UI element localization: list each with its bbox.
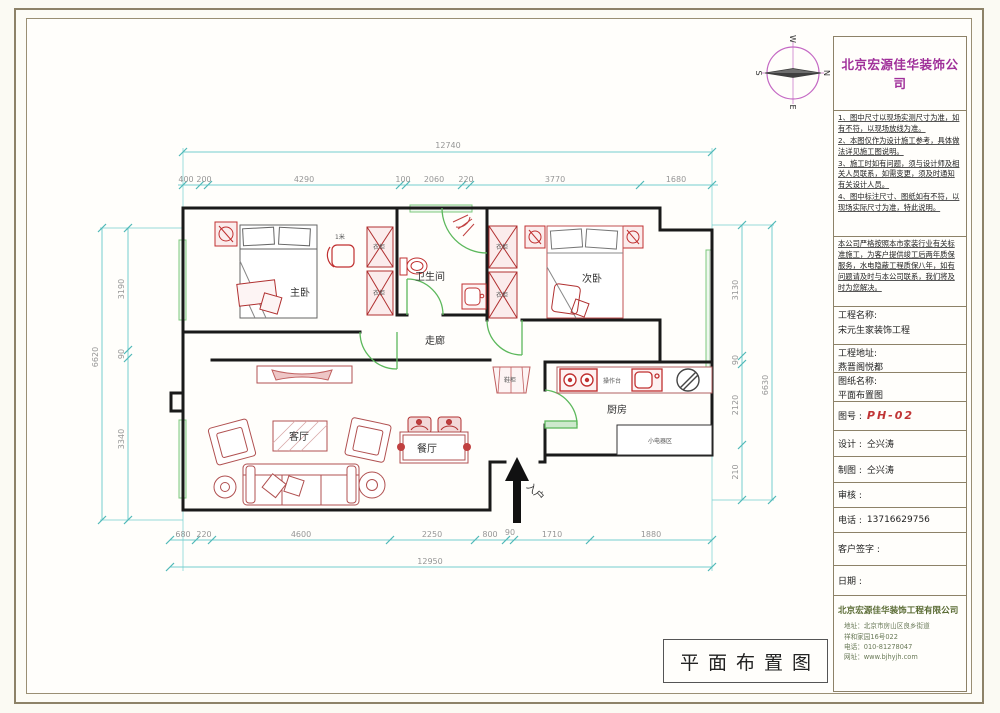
phone-box: 电话 : 13716629756 (834, 508, 966, 533)
svg-text:90: 90 (117, 349, 126, 359)
room-label-corridor: 走廊 (425, 334, 445, 347)
armchair (208, 418, 256, 465)
bathroom-door (407, 279, 443, 315)
stove (560, 369, 597, 391)
svg-text:4600: 4600 (291, 530, 311, 539)
reviewer-label: 审核 : (838, 488, 862, 501)
note-item: 2、本图仅作为设计施工参考，具体做法详见施工图说明。 (838, 136, 962, 158)
svg-text:2250: 2250 (422, 530, 442, 539)
wardrobe (489, 226, 517, 318)
designer-value: 仝兴涛 (867, 437, 894, 450)
svg-text:3340: 3340 (117, 429, 126, 449)
drafter-label: 制图 : (838, 463, 862, 476)
svg-text:90: 90 (505, 528, 515, 537)
wardrobe-label: 衣柜 (496, 243, 508, 251)
service-note: 本公司严格按照本市家装行业有关标准施工，为客户提供竣工后两年质保服务，水电隐蔽工… (834, 237, 966, 307)
svg-text:6630: 6630 (761, 375, 770, 395)
room-label-entry: 入户 (524, 480, 547, 503)
svg-text:4290: 4290 (294, 175, 314, 184)
appliance-area-label: 小电器区 (648, 437, 672, 445)
drafter-value: 仝兴涛 (867, 463, 894, 476)
svg-text:90: 90 (731, 355, 740, 365)
svg-text:800: 800 (482, 530, 497, 539)
sofa (243, 464, 359, 505)
floor-plan: 12740 400 200 4290 100 2060 220 3770 168… (70, 135, 835, 605)
kitchen-door (545, 390, 577, 428)
svg-text:220: 220 (196, 530, 211, 539)
svg-text:3130: 3130 (731, 280, 740, 300)
svg-text:1710: 1710 (542, 530, 562, 539)
drawing-sheet: 12740 400 200 4290 100 2060 220 3770 168… (0, 0, 1000, 713)
compass-letter-left: S (754, 70, 763, 75)
wardrobe-label: 衣柜 (373, 289, 385, 297)
compass-letter-bottom: E (788, 104, 797, 109)
shower-enclosure (442, 208, 487, 253)
room-label-living: 客厅 (289, 430, 309, 443)
designer-box: 设计 : 仝兴涛 (834, 431, 966, 457)
entry-area: 鞋柜 入户 (493, 367, 547, 523)
master-bedroom-furniture: 1米 衣柜 衣柜 主卧 (215, 222, 393, 318)
svg-text:1680: 1680 (666, 175, 686, 184)
fridge (677, 369, 699, 391)
drawing-no-value: PH-02 (867, 409, 914, 422)
footer-company-box: 北京宏源佳华装饰工程有限公司 地址：北京市房山区良乡街道 祥和家园16号022 … (834, 596, 966, 691)
project-address-label: 工程地址: (838, 347, 962, 361)
master-bedroom-door (360, 332, 397, 369)
reviewer-box: 审核 : (834, 483, 966, 508)
drawing-no-box: 图号 : PH-02 (834, 402, 966, 431)
second-bedroom-furniture: 衣柜 衣柜 次卧 (489, 226, 643, 318)
svg-text:2060: 2060 (424, 175, 444, 184)
phone-label: 电话 : (838, 513, 862, 526)
svg-text:200: 200 (196, 175, 211, 184)
bed (547, 226, 623, 318)
footer-line: 网址：www.bjhyjh.com (844, 652, 962, 662)
living-room-furniture: 客厅 (208, 366, 392, 505)
svg-text:6620: 6620 (91, 347, 100, 367)
kitchen-fixtures: 操作台 小电器区 厨房 (557, 367, 712, 455)
company-name: 北京宏源佳华装饰公司 (838, 54, 962, 92)
project-name-box: 工程名称: 宋元生家装饰工程 (834, 307, 966, 345)
drafter-box: 制图 : 仝兴涛 (834, 457, 966, 483)
counter-label: 操作台 (603, 377, 621, 385)
svg-text:2120: 2120 (731, 395, 740, 415)
svg-text:210: 210 (731, 464, 740, 479)
svg-text:220: 220 (458, 175, 473, 184)
footer-line: 地址：北京市房山区良乡街道 (844, 621, 962, 631)
svg-text:12740: 12740 (435, 141, 460, 150)
room-label-dining: 餐厅 (417, 442, 437, 455)
drawing-name-box: 图纸名称: 平面布置图 (834, 373, 966, 402)
sheet-title-box: 平面布置图 (663, 639, 828, 683)
compass-letter-top: W (788, 35, 797, 43)
drawing-name-value: 平面布置图 (838, 389, 962, 402)
shower-head-icon (453, 215, 474, 236)
room-label-second: 次卧 (582, 272, 602, 285)
shoe-cabinet-label: 鞋柜 (504, 376, 516, 384)
chair (327, 245, 354, 267)
date-label: 日期 : (838, 574, 862, 587)
room-label-master: 主卧 (290, 286, 310, 299)
svg-text:1880: 1880 (641, 530, 661, 539)
note-item: 3、施工时如有问题，须与设计师及相关人员联系，如需变更，须及时通知有关设计人员。 (838, 159, 962, 192)
svg-text:3770: 3770 (545, 175, 565, 184)
project-name-label: 工程名称: (838, 309, 962, 323)
washbasin (462, 284, 486, 309)
wardrobe (367, 227, 393, 315)
svg-text:100: 100 (395, 175, 410, 184)
note-item: 1、图中尺寸以现场实测尺寸为准，如有不符，以现场放线为准。 (838, 113, 962, 135)
title-block: 北京宏源佳华装饰公司 1、图中尺寸以现场实测尺寸为准，如有不符，以现场放线为准。… (833, 36, 967, 692)
designer-label: 设计 : (838, 437, 862, 450)
room-label-bathroom: 卫生间 (415, 270, 445, 283)
footer-line: 祥和家园16号022 (844, 632, 962, 642)
second-bedroom-door (487, 320, 522, 355)
drawing-no-label: 图号 : (838, 409, 862, 422)
client-signature-label: 客户签字 : (838, 542, 880, 555)
footer-line: 电话：010-81278047 (844, 642, 962, 652)
svg-text:400: 400 (178, 175, 193, 184)
sheet-title: 平面布置图 (671, 648, 820, 675)
bathroom-fixtures: 卫生间 (400, 258, 486, 309)
armchair (344, 417, 391, 462)
footer-company-name: 北京宏源佳华装饰工程有限公司 (838, 604, 962, 616)
room-label-kitchen: 厨房 (607, 403, 627, 416)
dining-chair (408, 417, 461, 433)
project-address-value: 燕晋阁悦都 (838, 361, 962, 373)
project-address-box: 工程地址: 燕晋阁悦都 (834, 345, 966, 373)
wardrobe-label: 衣柜 (373, 243, 385, 251)
project-name-value: 宋元生家装饰工程 (838, 324, 962, 338)
north-compass: W N E S (754, 34, 832, 112)
client-signature-box: 客户签字 : (834, 533, 966, 567)
dining-furniture: 餐厅 (397, 417, 471, 463)
general-notes: 1、图中尺寸以现场实测尺寸为准，如有不符，以现场放线为准。 2、本图仅作为设计施… (834, 111, 966, 238)
note-item: 4、图中标注尺寸、图纸如有不符，以现场实际尺寸为准，特此说明。 (838, 192, 962, 214)
drawing-name-label: 图纸名称: (838, 375, 962, 389)
date-box: 日期 : (834, 566, 966, 596)
nightstand (215, 222, 237, 246)
wardrobe-label: 衣柜 (496, 291, 508, 299)
svg-text:12950: 12950 (417, 557, 442, 566)
svg-text:680: 680 (175, 530, 190, 539)
svg-text:3190: 3190 (117, 279, 126, 299)
company-name-box: 北京宏源佳华装饰公司 (834, 37, 966, 111)
compass-letter-right: N (822, 70, 831, 76)
tv-cabinet (257, 366, 352, 383)
chair-size-label: 1米 (335, 233, 345, 241)
phone-value: 13716629756 (867, 515, 930, 525)
sink (632, 369, 662, 391)
